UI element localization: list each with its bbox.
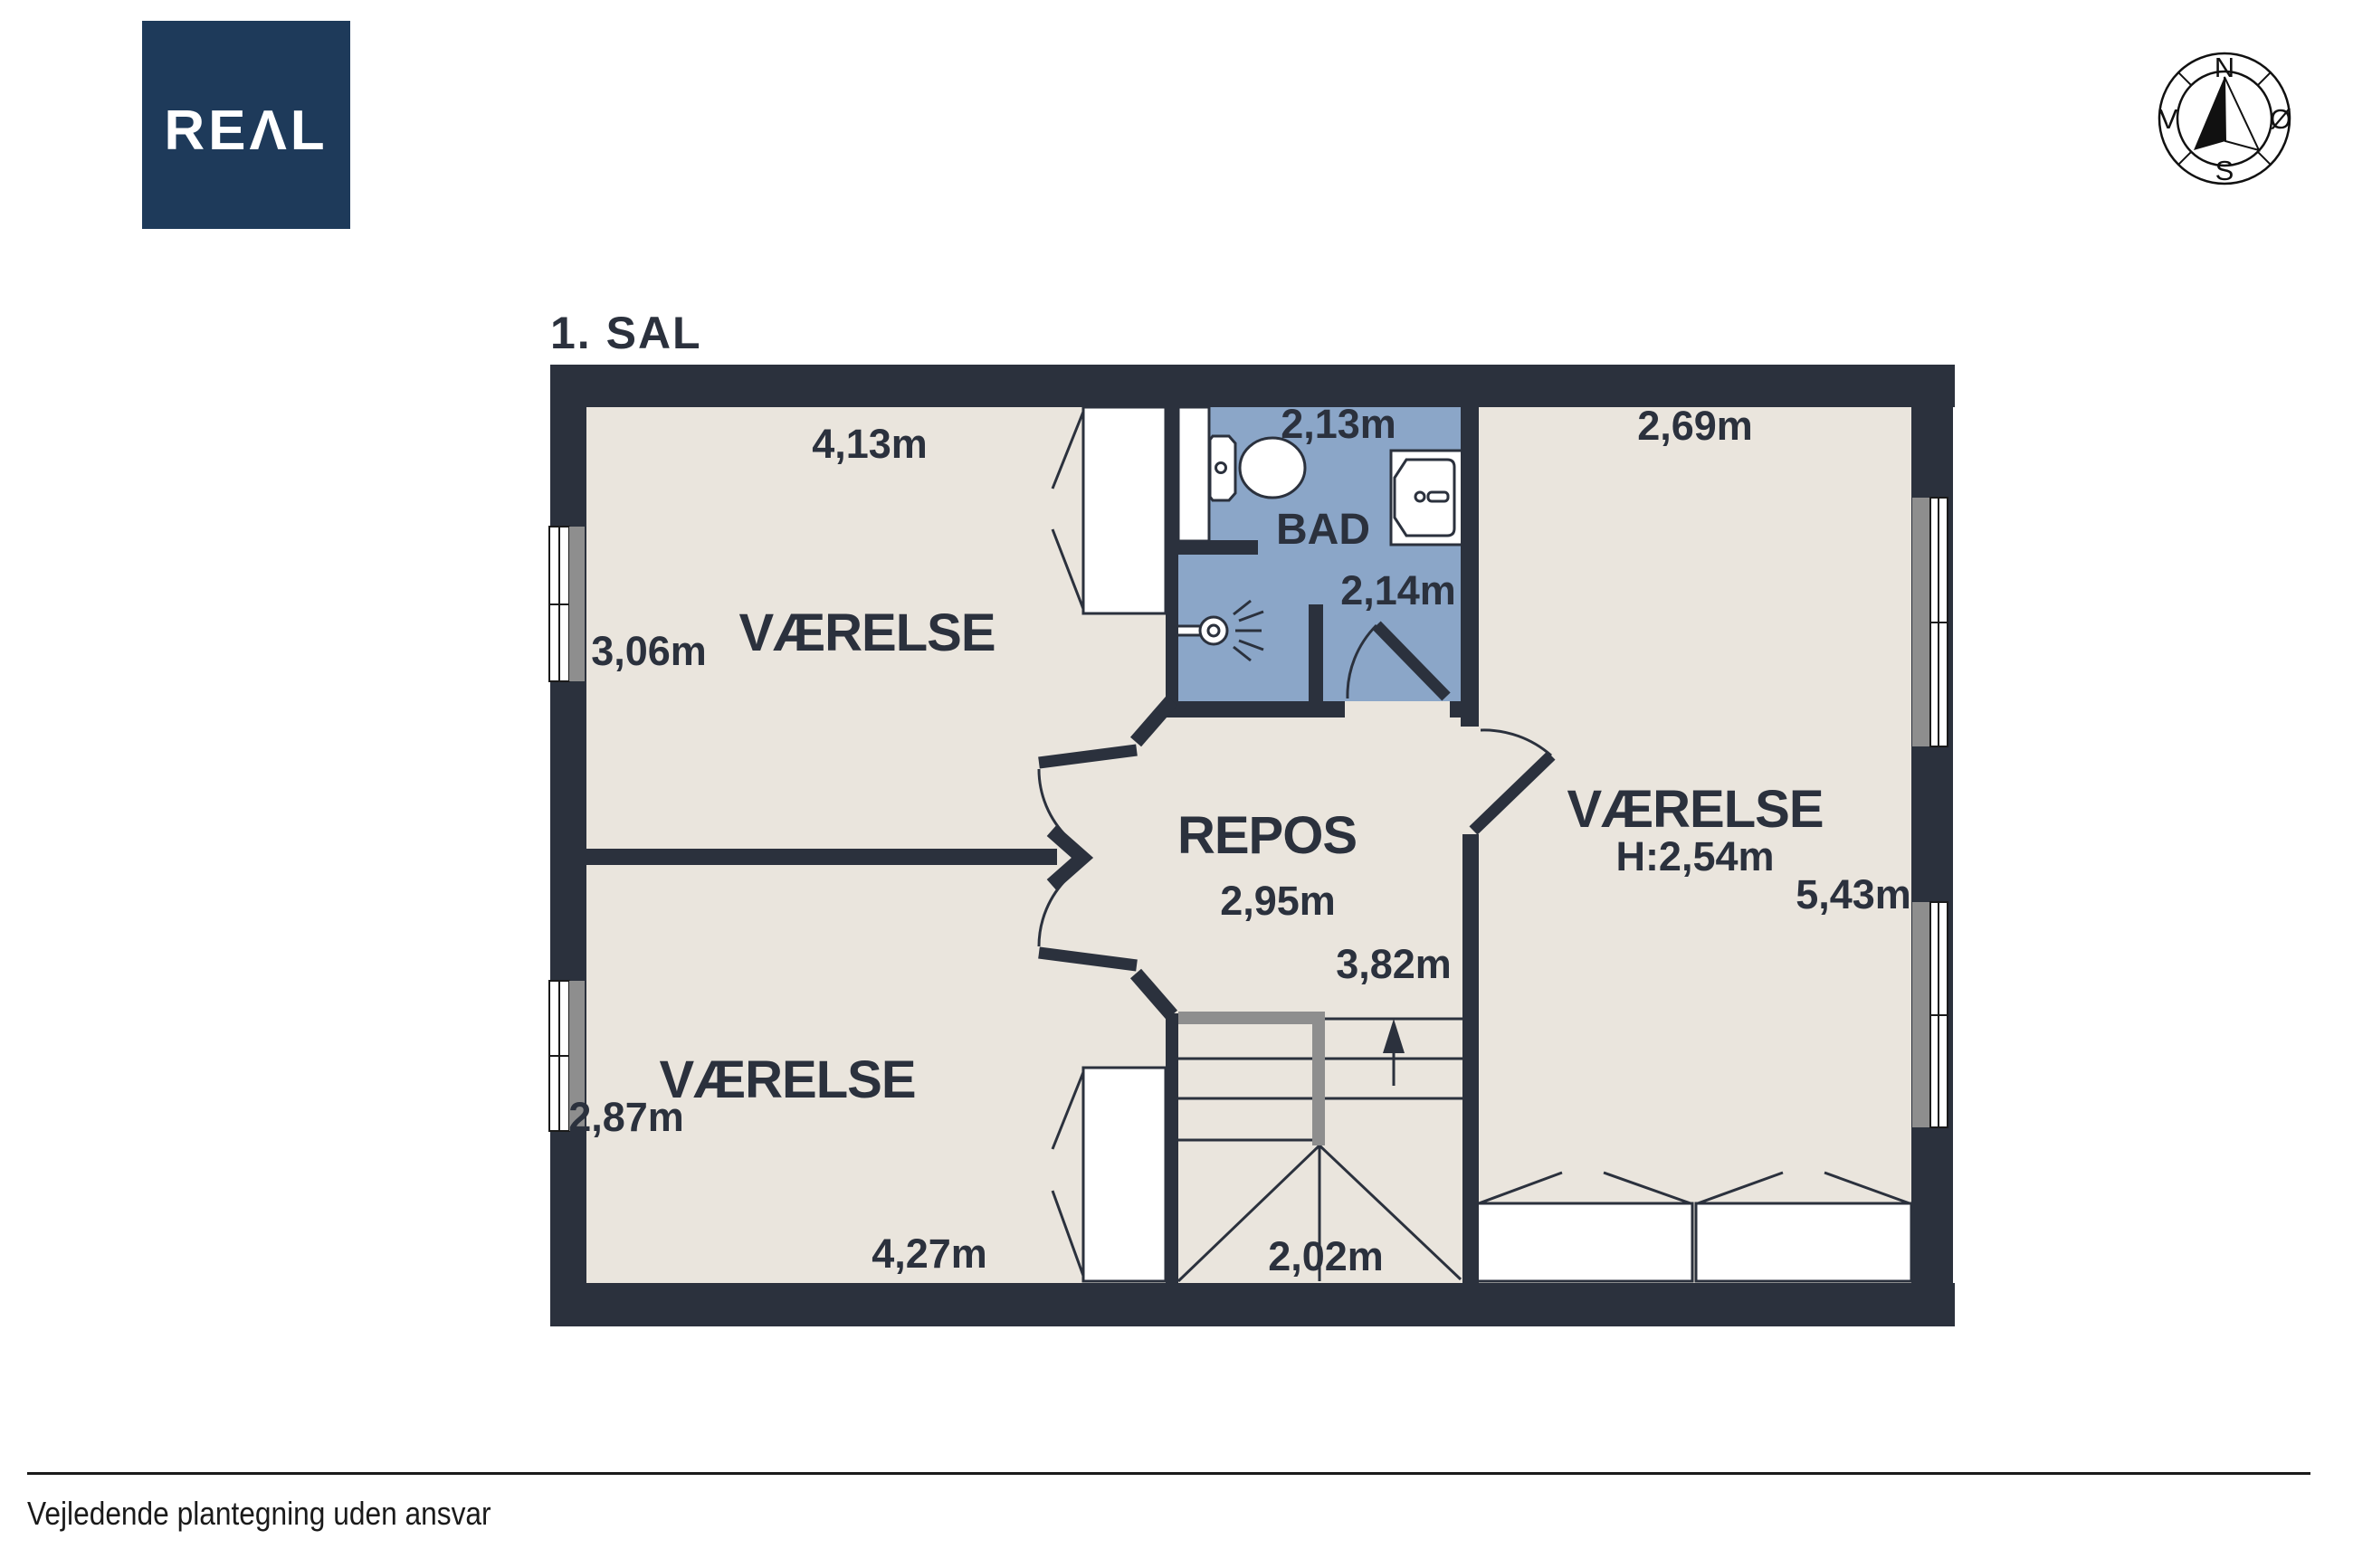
label-sw-width: 4,27m	[872, 1231, 987, 1277]
footer-disclaimer: Vejledende plantegning uden ansvar	[27, 1495, 491, 1533]
floor-plan-drawing: N Ø S V 1. SAL	[0, 0, 2353, 1568]
label-east-depth: 5,43m	[1796, 871, 1911, 917]
footer-divider	[27, 1472, 2310, 1475]
label-stairs-width: 2,02m	[1268, 1233, 1384, 1279]
label-room-east: VÆRELSE	[1567, 780, 1823, 839]
label-bad-door: 2,14m	[1340, 567, 1456, 613]
label-east-width: 2,69m	[1637, 403, 1753, 449]
compass-south-label: S	[2215, 155, 2234, 186]
sink-icon	[1391, 451, 1463, 545]
compass-west-label: V	[2159, 103, 2178, 135]
compass-east-label: Ø	[2270, 103, 2291, 135]
label-nw-depth: 3,06m	[591, 628, 707, 674]
floor-title: 1. SAL	[550, 308, 702, 358]
label-room-sw: VÆRELSE	[659, 1050, 915, 1109]
compass-rose-icon: N Ø S V	[2159, 52, 2291, 186]
label-room-nw: VÆRELSE	[738, 603, 995, 662]
label-east-ceiling: H:2,54m	[1615, 833, 1774, 879]
label-repos-width: 2,95m	[1220, 878, 1336, 924]
label-room-bad: BAD	[1276, 506, 1370, 554]
window	[1912, 902, 1948, 1127]
label-nw-width: 4,13m	[812, 421, 928, 467]
label-room-repos: REPOS	[1177, 806, 1357, 865]
stair-railing	[1312, 1012, 1325, 1145]
compass-north-label: N	[2215, 52, 2234, 83]
window	[549, 527, 585, 681]
label-repos-depth: 3,82m	[1336, 941, 1452, 987]
stair-railing	[1178, 1012, 1325, 1024]
window	[1912, 498, 1948, 746]
label-bad-width: 2,13m	[1281, 401, 1396, 447]
